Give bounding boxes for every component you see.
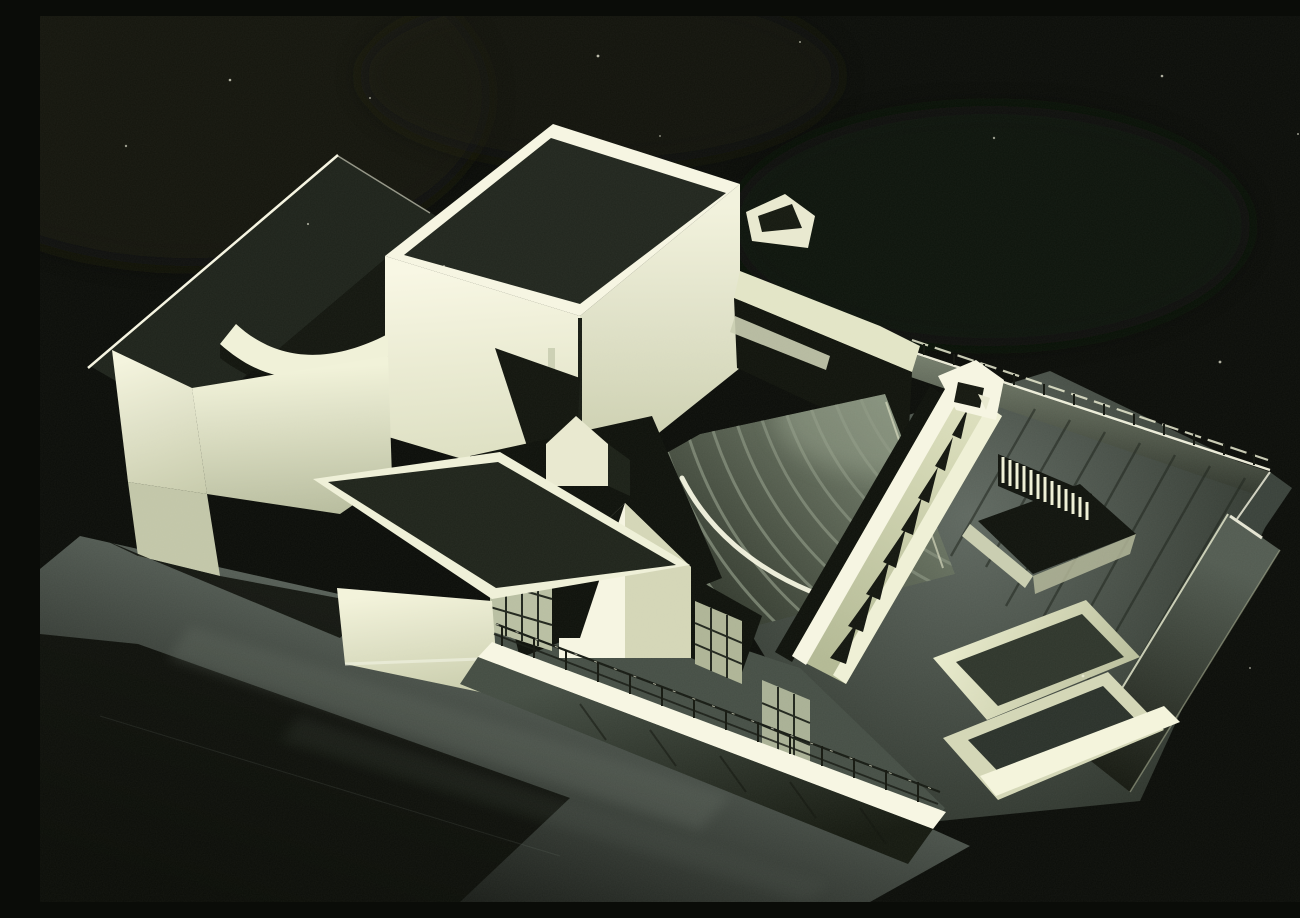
photo-canvas: Architectural model photograph bbox=[40, 16, 1300, 902]
film-grain bbox=[40, 16, 1300, 902]
model-photograph: Architectural model photograph bbox=[40, 16, 1300, 902]
